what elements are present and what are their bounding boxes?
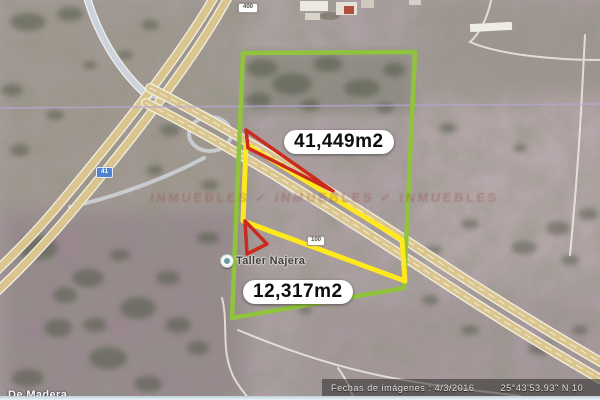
route-shield-41: 41 <box>96 167 113 178</box>
photo-edge-strip <box>0 396 600 400</box>
route-shield-100: 100 <box>307 236 325 246</box>
watermark: INMUEBLES ✓ INMUEBLES ✓ INMUEBLES <box>149 190 600 212</box>
area-label-small: 12,317m2 <box>243 280 353 304</box>
imagery-date-label: Fechas de imágenes : 4/3/2016 <box>322 383 474 393</box>
coordinates-label: 25°43'53.93" N 10 <box>474 383 583 393</box>
route-shield-400: 400 <box>238 3 258 13</box>
poi-label-taller-najera: Taller Najera <box>236 255 305 267</box>
place-marker-icon <box>220 254 234 268</box>
status-bar: Fechas de imágenes : 4/3/2016 25°43'53.9… <box>322 379 600 396</box>
listing-map-photo: INMUEBLES ✓ INMUEBLES ✓ INMUEBLES 400 41… <box>0 0 600 400</box>
area-label-large: 41,449m2 <box>284 130 394 154</box>
